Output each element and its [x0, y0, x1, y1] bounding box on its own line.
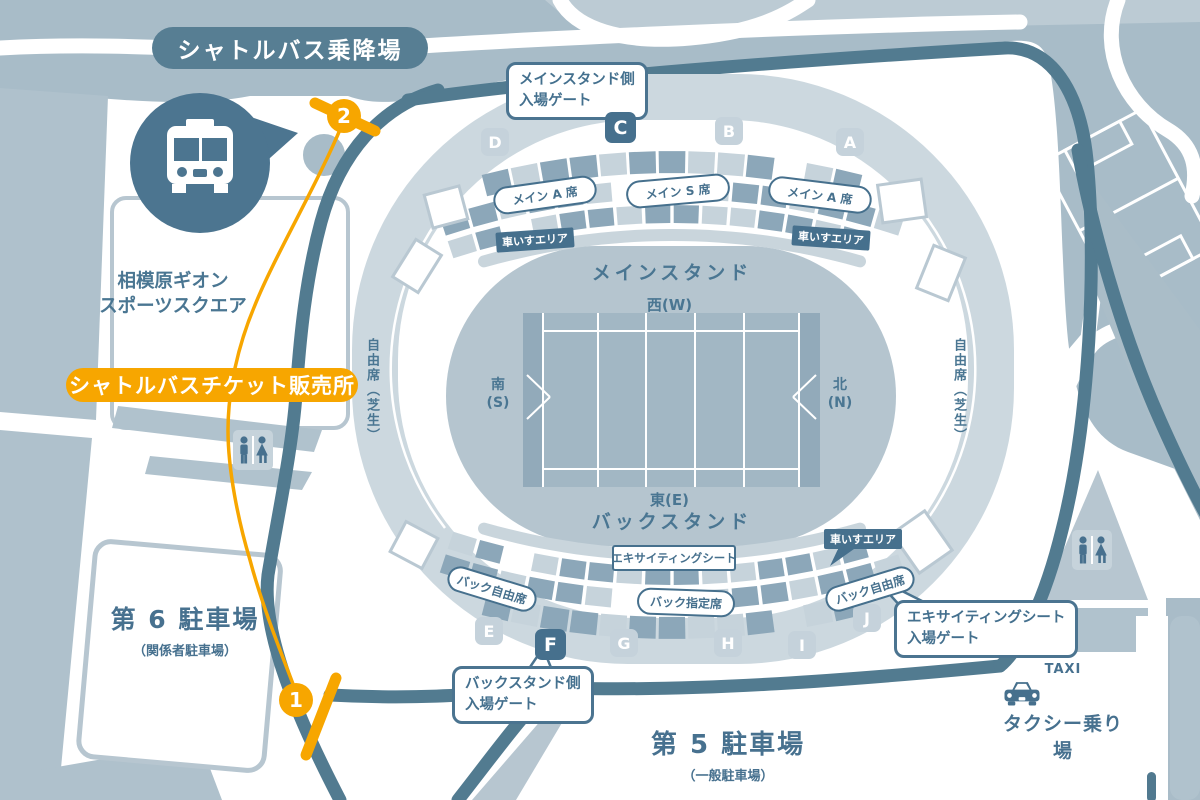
gate-g: G	[610, 629, 638, 657]
parking6-title: 第 6 駐車場	[100, 600, 270, 636]
parking5-subtitle: （一般駐車場）	[638, 765, 818, 784]
back-stand-label: バックスタンド	[572, 507, 772, 534]
parking5-title: 第 5 駐車場	[638, 724, 818, 761]
gate-a: A	[836, 128, 864, 156]
lawn-seat-right: 自由席（芝生）	[949, 338, 968, 458]
direction-east: 東(E)	[642, 489, 697, 510]
lawn-seat-left: 自由席（芝生）	[362, 338, 381, 458]
main-stand-label: メインスタンド	[572, 258, 772, 285]
gate-d: D	[481, 128, 509, 156]
road-dash	[1147, 772, 1156, 800]
sports-square-label: 相模原ギオン スポーツスクエア	[78, 270, 268, 320]
gate-b: B	[715, 117, 743, 145]
shuttle-bus-stop-label: シャトルバス乗降場	[152, 27, 428, 69]
gate-j: J	[853, 604, 881, 632]
back-gate-line2: 入場ゲート	[465, 695, 581, 716]
exciting-gate-bubble: エキサイティングシート 入場ゲート	[894, 600, 1078, 658]
restroom-icon	[233, 430, 273, 470]
parking5-label: 第 5 駐車場 （一般駐車場）	[638, 724, 818, 784]
parking6-subtitle: （関係者駐車場）	[100, 640, 270, 659]
taxi-sign: TAXI	[1002, 662, 1124, 677]
wheelchair-area-back-right: 車いすエリア	[824, 529, 902, 549]
direction-north-kanji: 北	[822, 377, 858, 395]
sports-square-line2: スポーツスクエア	[78, 295, 268, 320]
gate-e: E	[475, 617, 503, 645]
gate-i: I	[788, 631, 816, 659]
direction-north-roman: (N)	[822, 395, 858, 413]
main-gate-line2: 入場ゲート	[519, 91, 635, 112]
direction-west: 西(W)	[642, 294, 697, 315]
route-marker-1: 1	[279, 683, 313, 717]
gate-c: C	[605, 112, 636, 143]
taxi-icon	[1002, 678, 1124, 708]
exciting-gate-line1: エキサイティングシート	[907, 608, 1065, 629]
ticket-office-label: シャトルバスチケット販売所	[66, 368, 358, 402]
seat-exciting: エキサイティングシート	[612, 545, 736, 571]
direction-south-roman: (S)	[480, 395, 516, 413]
taxi-stand: TAXI タクシー乗り場	[1002, 662, 1124, 763]
gate-h: H	[714, 629, 742, 657]
stadium-access-map: シャトルバス乗降場 相模原ギオン スポーツスクエア シャトルバスチケット販売所 …	[0, 0, 1200, 800]
direction-north: 北 (N)	[822, 377, 858, 412]
parking6-label: 第 6 駐車場 （関係者駐車場）	[100, 600, 270, 659]
exciting-gate-line2: 入場ゲート	[907, 629, 1065, 650]
sports-square-line1: 相模原ギオン	[78, 270, 268, 295]
gate-f: F	[535, 629, 566, 660]
direction-south-kanji: 南	[480, 377, 516, 395]
back-gate-bubble: バックスタンド側 入場ゲート	[452, 666, 594, 724]
restroom-icon	[1072, 530, 1112, 570]
seat-back-reserved: バック指定席	[637, 587, 736, 617]
bus-icon	[167, 119, 233, 193]
main-gate-line1: メインスタンド側	[519, 70, 635, 91]
back-gate-line1: バックスタンド側	[465, 674, 581, 695]
route-marker-2: 2	[327, 99, 361, 133]
direction-south: 南 (S)	[480, 377, 516, 412]
taxi-stand-label: タクシー乗り場	[1002, 709, 1124, 763]
rugby-field	[523, 313, 820, 487]
